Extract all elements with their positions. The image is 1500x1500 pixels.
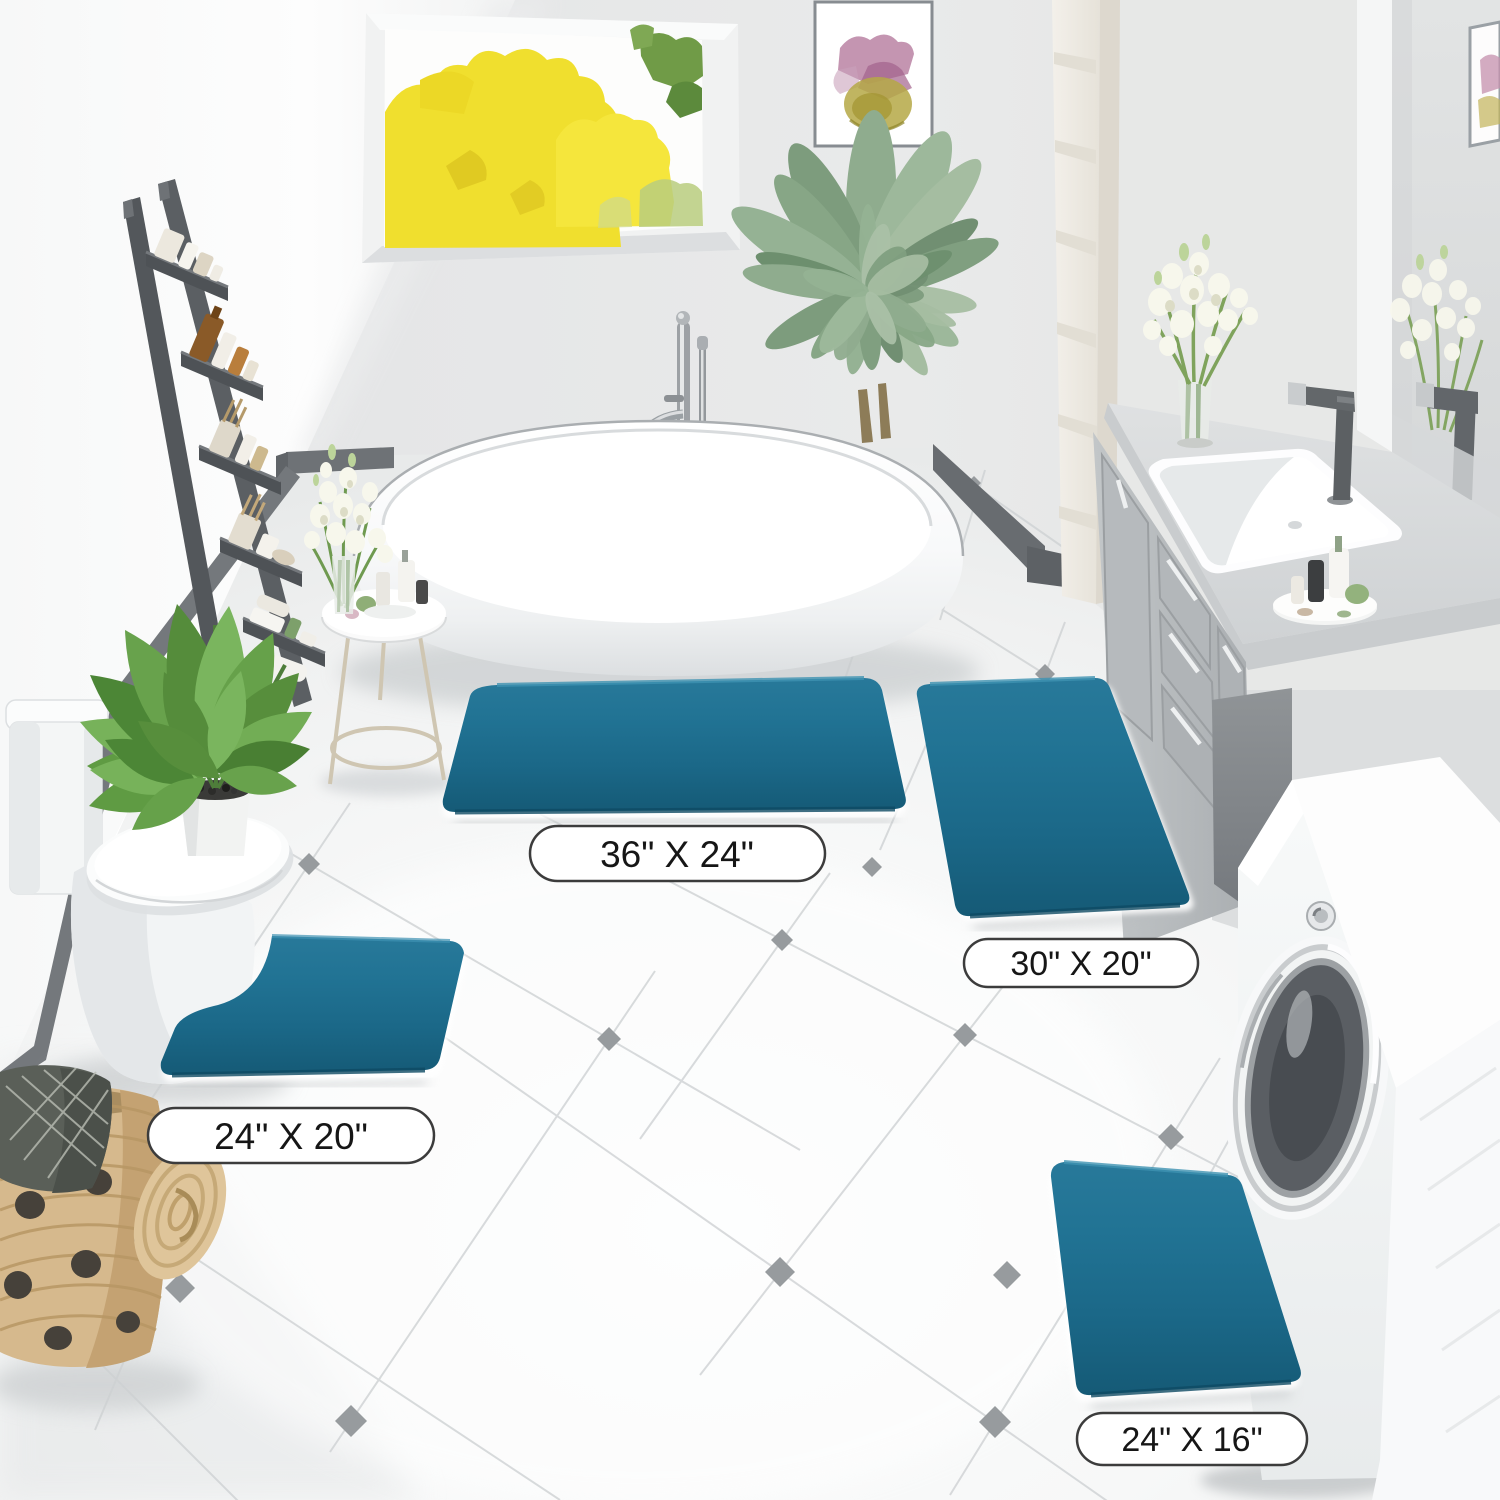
svg-text:24" X 16": 24" X 16" xyxy=(1121,1421,1262,1459)
svg-text:36" X 24": 36" X 24" xyxy=(600,834,754,875)
svg-text:24" X 20": 24" X 20" xyxy=(214,1116,368,1157)
svg-text:30" X 20": 30" X 20" xyxy=(1010,945,1151,983)
